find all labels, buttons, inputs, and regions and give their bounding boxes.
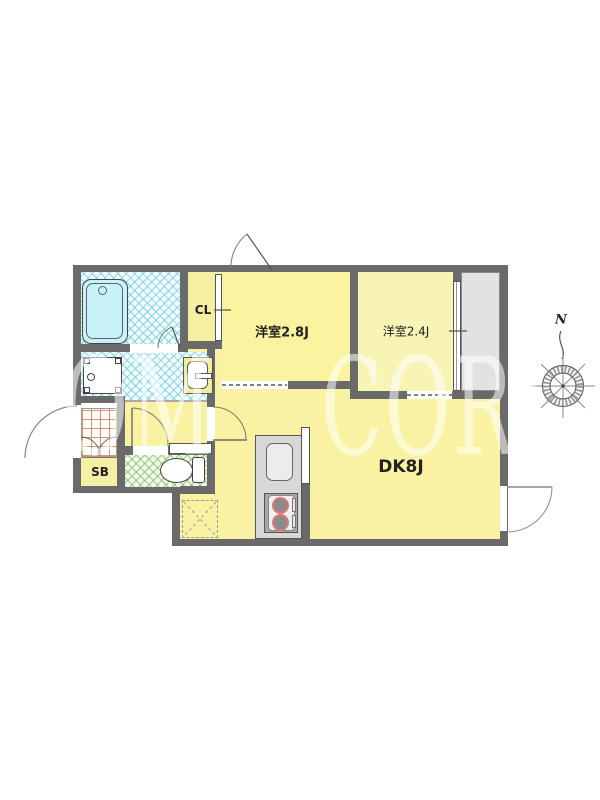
top-door-arc (231, 234, 247, 268)
floor-plan-page: CL 洋室2.8J 洋室2.4J DK8J SB N OM CORI (0, 0, 600, 800)
entrance-double-arc-left (81, 437, 100, 456)
top-door-leaf (247, 234, 272, 270)
entrance-door-arc (25, 406, 77, 458)
entrance-double-arc-right (98, 437, 117, 456)
dk-door-arc (507, 487, 552, 532)
plan-linework (0, 0, 600, 800)
bath-door-leaf (172, 327, 180, 348)
bath-door-arc (158, 327, 172, 348)
hall-door-arc (213, 407, 246, 440)
compass-rose (531, 331, 595, 418)
toilet-door-arc (132, 408, 168, 446)
